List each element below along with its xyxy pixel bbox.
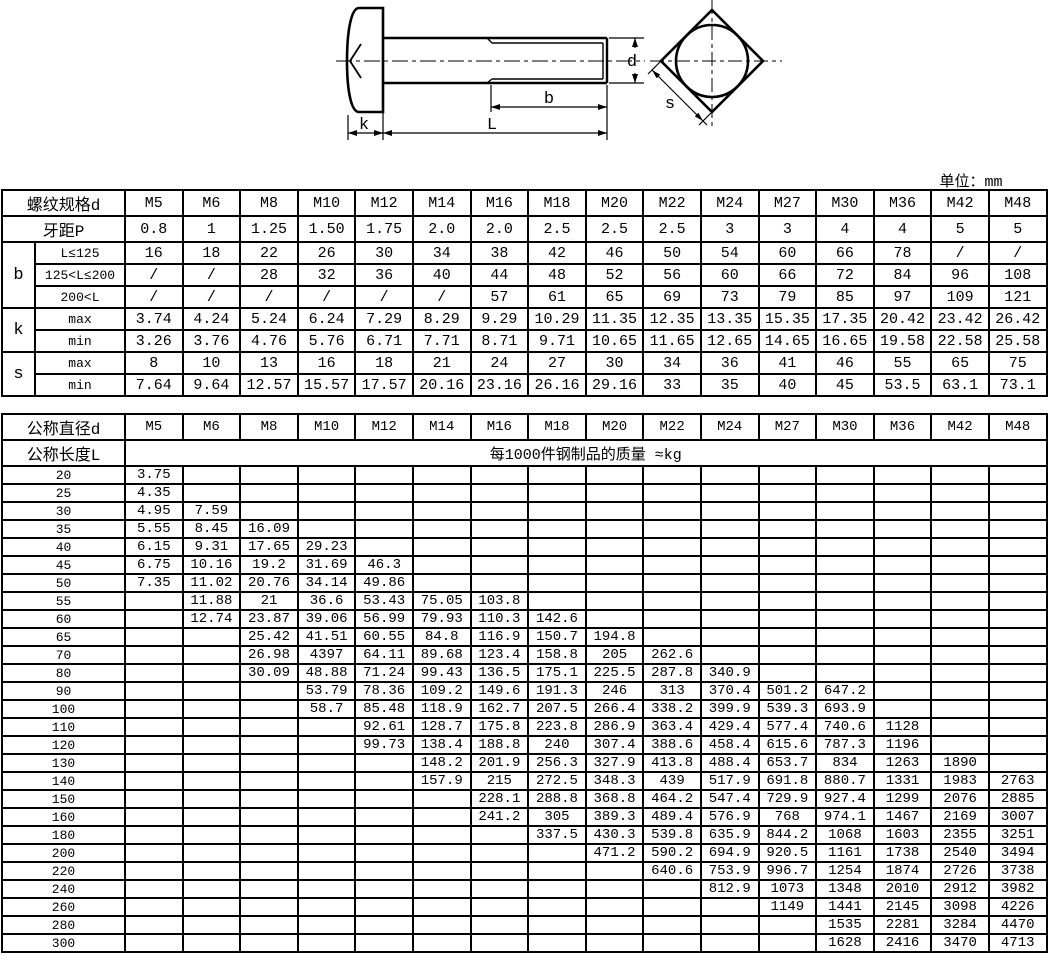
value-cell: 92.61 [355,718,413,736]
value-cell [355,520,413,538]
value-cell: 99.73 [355,736,413,754]
value-cell: 84 [874,264,932,286]
value-cell: 3.74 [125,308,183,330]
value-cell: 69 [643,286,701,308]
value-cell: 471.2 [586,844,644,862]
spec-size-header: M24 [701,190,759,216]
value-cell: 30 [586,352,644,374]
value-cell: 577.4 [759,718,817,736]
value-cell [183,916,241,934]
table-row: 240812.910731348201029123982 [2,880,1047,898]
value-cell: 3284 [931,916,989,934]
value-cell: 207.5 [528,700,586,718]
value-cell [240,808,298,826]
value-cell: 12.57 [240,374,298,396]
value-cell: 7.29 [355,308,413,330]
value-cell: 256.3 [528,754,586,772]
value-cell: 7.64 [125,374,183,396]
value-cell: 4.95 [125,502,183,520]
value-cell: 1.75 [355,216,413,242]
value-cell [701,538,759,556]
value-cell [816,574,874,592]
value-cell: 57 [471,286,529,308]
value-cell: 501.2 [759,682,817,700]
value-cell: 2416 [874,934,932,952]
value-cell: 225.5 [586,664,644,682]
value-cell [701,628,759,646]
value-cell: 927.4 [816,790,874,808]
value-cell [240,700,298,718]
dimension-b: b [491,85,607,112]
value-cell: 22.58 [931,330,989,352]
value-cell [931,700,989,718]
group-label: k [2,308,35,352]
value-cell [355,898,413,916]
mass-size-header: M14 [413,414,471,440]
length-cell: 220 [2,862,125,880]
value-cell: 3098 [931,898,989,916]
value-cell: 23.87 [240,610,298,628]
value-cell [931,502,989,520]
value-cell: 78.36 [355,682,413,700]
value-cell: 2912 [931,880,989,898]
value-cell [413,898,471,916]
value-cell: 1149 [759,898,817,916]
value-cell [643,592,701,610]
value-cell: 1441 [816,898,874,916]
value-cell [471,862,529,880]
value-cell: 1.25 [240,216,298,242]
value-cell: 84.8 [413,628,471,646]
value-cell [413,484,471,502]
value-cell [240,754,298,772]
table-row: 203.75 [2,466,1047,484]
spec-header-label: 螺纹规格d [2,190,125,216]
length-cell: 25 [2,484,125,502]
value-cell [701,898,759,916]
value-cell: 286.9 [586,718,644,736]
value-cell [701,502,759,520]
value-cell: 31.69 [298,556,356,574]
value-cell: 58.7 [298,700,356,718]
spec-table: 螺纹规格dM5M6M8M10M12M14M16M18M20M22M24M27M3… [1,189,1048,397]
value-cell [298,826,356,844]
value-cell [298,754,356,772]
value-cell: / [183,286,241,308]
value-cell [816,610,874,628]
value-cell [355,502,413,520]
value-cell: 413.8 [643,754,701,772]
value-cell: 1299 [874,790,932,808]
spec-size-header: M6 [183,190,241,216]
value-cell [989,736,1047,754]
value-cell: 3 [701,216,759,242]
value-cell: 50 [643,242,701,264]
length-cell: 70 [2,646,125,664]
value-cell: 7.71 [413,330,471,352]
value-cell [528,484,586,502]
pitch-label: 牙距P [2,216,125,242]
length-cell: 180 [2,826,125,844]
value-cell [355,484,413,502]
value-cell [413,574,471,592]
table-row: 螺纹规格dM5M6M8M10M12M14M16M18M20M22M24M27M3… [2,190,1047,216]
value-cell: 1535 [816,916,874,934]
value-cell: 996.7 [759,862,817,880]
group-label: s [2,352,35,396]
value-cell [125,592,183,610]
length-cell: 45 [2,556,125,574]
value-cell [528,592,586,610]
value-cell: 2.5 [586,216,644,242]
value-cell [816,628,874,646]
value-cell: 287.8 [643,664,701,682]
value-cell: 53.43 [355,592,413,610]
value-cell: 96 [931,264,989,286]
value-cell: 65 [586,286,644,308]
value-cell [125,772,183,790]
value-cell: 8.45 [183,520,241,538]
value-cell: 880.7 [816,772,874,790]
value-cell: 4.35 [125,484,183,502]
table-row: 125<L≤200//28323640444852566066728496108 [2,264,1047,286]
dim-label-L: L [487,116,497,135]
value-cell [528,538,586,556]
diameter-label: 公称直径d [2,414,125,440]
value-cell: 729.9 [759,790,817,808]
value-cell: 2355 [931,826,989,844]
value-cell: 974.1 [816,808,874,826]
value-cell [816,538,874,556]
length-cell: 60 [2,610,125,628]
value-cell [240,718,298,736]
value-cell [413,916,471,934]
mass-note: 每1000件钢制品的质量 ≈kg [125,440,1047,466]
value-cell: 370.4 [701,682,759,700]
spec-size-header: M20 [586,190,644,216]
value-cell: 16 [298,352,356,374]
value-cell: 215 [471,772,529,790]
value-cell: 194.8 [586,628,644,646]
length-cell: 160 [2,808,125,826]
mass-size-header: M18 [528,414,586,440]
value-cell: / [183,264,241,286]
value-cell: 693.9 [816,700,874,718]
value-cell [240,934,298,952]
value-cell [298,880,356,898]
mass-size-header: M48 [989,414,1047,440]
value-cell [183,682,241,700]
value-cell: 48 [528,264,586,286]
value-cell: 26.16 [528,374,586,396]
value-cell: 327.9 [586,754,644,772]
value-cell: / [298,286,356,308]
value-cell: 0.8 [125,216,183,242]
value-cell [355,916,413,934]
length-cell: 120 [2,736,125,754]
value-cell: 46 [586,242,644,264]
table-row: bL≤1251618222630343842465054606678// [2,242,1047,264]
value-cell: 5.76 [298,330,356,352]
value-cell: 26 [298,242,356,264]
value-cell: 41.51 [298,628,356,646]
table-row: 12099.73138.4188.8240307.4388.6458.4615.… [2,736,1047,754]
value-cell [240,736,298,754]
value-cell: 109 [931,286,989,308]
value-cell: 4.76 [240,330,298,352]
value-cell [125,718,183,736]
value-cell: 8.29 [413,308,471,330]
value-cell: 20.76 [240,574,298,592]
value-cell [125,736,183,754]
value-cell [471,484,529,502]
value-cell: 52 [586,264,644,286]
value-cell: 590.2 [643,844,701,862]
value-cell [586,520,644,538]
value-cell [701,934,759,952]
spec-size-header: M27 [759,190,817,216]
value-cell: 2.5 [528,216,586,242]
value-cell: 2.0 [413,216,471,242]
value-cell [586,898,644,916]
value-cell: 53.79 [298,682,356,700]
value-cell: 4 [816,216,874,242]
value-cell: 19.2 [240,556,298,574]
value-cell: 338.2 [643,700,701,718]
value-cell [355,790,413,808]
length-cell: 240 [2,880,125,898]
table-row: 200471.2590.2694.9920.51161173825403494 [2,844,1047,862]
value-cell: 148.2 [413,754,471,772]
value-cell [183,466,241,484]
value-cell [471,538,529,556]
value-cell: 17.65 [240,538,298,556]
value-cell [413,502,471,520]
value-cell: 121 [989,286,1047,308]
value-cell [298,772,356,790]
value-cell [643,916,701,934]
value-cell [874,610,932,628]
value-cell: 5.55 [125,520,183,538]
dim-label-k: k [359,116,369,135]
value-cell: 3.75 [125,466,183,484]
row-label: 200<L [35,286,125,308]
value-cell: 1073 [759,880,817,898]
value-cell [701,592,759,610]
value-cell [355,808,413,826]
value-cell [586,592,644,610]
value-cell [989,574,1047,592]
value-cell: 5.24 [240,308,298,330]
value-cell: 11.02 [183,574,241,592]
value-cell [989,466,1047,484]
value-cell [355,772,413,790]
value-cell: 4470 [989,916,1047,934]
value-cell: 3.26 [125,330,183,352]
spec-size-header: M10 [298,190,356,216]
row-label: 125<L≤200 [35,264,125,286]
value-cell [816,556,874,574]
value-cell: 1331 [874,772,932,790]
value-cell: 18 [183,242,241,264]
value-cell [413,880,471,898]
value-cell [298,466,356,484]
value-cell [471,934,529,952]
value-cell [471,556,529,574]
value-cell [413,862,471,880]
value-cell: 1128 [874,718,932,736]
length-cell: 300 [2,934,125,952]
value-cell [874,520,932,538]
row-label: L≤125 [35,242,125,264]
value-cell [989,592,1047,610]
value-cell [759,538,817,556]
table-row: 406.159.3117.6529.23 [2,538,1047,556]
length-cell: 260 [2,898,125,916]
length-cell: 35 [2,520,125,538]
value-cell: 635.9 [701,826,759,844]
value-cell: 25.58 [989,330,1047,352]
value-cell: 34 [643,352,701,374]
value-cell: 17.57 [355,374,413,396]
value-cell [931,682,989,700]
table-row: 3001628241634704713 [2,934,1047,952]
value-cell: 458.4 [701,736,759,754]
spec-size-header: M16 [471,190,529,216]
value-cell: 97 [874,286,932,308]
table-row: 9053.7978.36109.2149.6191.3246313370.450… [2,682,1047,700]
value-cell: 11.65 [643,330,701,352]
value-cell: 12.74 [183,610,241,628]
value-cell: 920.5 [759,844,817,862]
value-cell [759,592,817,610]
table-row: 6525.4241.5160.5584.8116.9150.7194.8 [2,628,1047,646]
value-cell [874,700,932,718]
value-cell [759,502,817,520]
value-cell [125,880,183,898]
length-cell: 280 [2,916,125,934]
value-cell: 73 [701,286,759,308]
value-cell: 41 [759,352,817,374]
mass-size-header: M6 [183,414,241,440]
value-cell: 640.6 [643,862,701,880]
length-cell: 150 [2,790,125,808]
value-cell: 3.76 [183,330,241,352]
value-cell: 768 [759,808,817,826]
value-cell [240,862,298,880]
value-cell: 28 [240,264,298,286]
value-cell [183,826,241,844]
mass-size-header: M8 [240,414,298,440]
value-cell [989,700,1047,718]
value-cell: 10 [183,352,241,374]
value-cell: 20.16 [413,374,471,396]
value-cell: 834 [816,754,874,772]
value-cell [413,790,471,808]
length-cell: 40 [2,538,125,556]
mass-table: 公称直径dM5M6M8M10M12M14M16M18M20M22M24M27M3… [1,413,1048,953]
value-cell [471,502,529,520]
value-cell [643,466,701,484]
value-cell: 1890 [931,754,989,772]
value-cell: 653.7 [759,754,817,772]
value-cell: 118.9 [413,700,471,718]
value-cell: 56 [643,264,701,286]
row-label: min [35,330,125,352]
value-cell: 539.3 [759,700,817,718]
value-cell: 1628 [816,934,874,952]
table-row: 220640.6753.9996.71254187427263738 [2,862,1047,880]
value-cell: 71.24 [355,664,413,682]
bolt-technical-drawing: d b L k s [330,0,800,150]
value-cell: 305 [528,808,586,826]
length-cell: 90 [2,682,125,700]
value-cell [528,466,586,484]
value-cell [183,862,241,880]
value-cell [471,898,529,916]
value-cell: 128.7 [413,718,471,736]
table-row: smax8101316182124273034364146556575 [2,352,1047,374]
row-label: min [35,374,125,396]
value-cell: 175.8 [471,718,529,736]
value-cell: 1161 [816,844,874,862]
value-cell [701,916,759,934]
value-cell: 149.6 [471,682,529,700]
value-cell: 9.29 [471,308,529,330]
value-cell: 79 [759,286,817,308]
value-cell: 45 [816,374,874,396]
value-cell [471,466,529,484]
mass-size-header: M10 [298,414,356,440]
value-cell [874,664,932,682]
value-cell [183,790,241,808]
value-cell: 18 [355,352,413,374]
mass-size-header: M24 [701,414,759,440]
value-cell: 73.1 [989,374,1047,396]
value-cell: 2.0 [471,216,529,242]
value-cell [874,466,932,484]
spec-size-header: M48 [989,190,1047,216]
value-cell [701,466,759,484]
mass-size-header: M16 [471,414,529,440]
table-row: 130148.2201.9256.3327.9413.8488.4653.783… [2,754,1047,772]
value-cell: 15.35 [759,308,817,330]
value-cell [701,646,759,664]
value-cell: 4713 [989,934,1047,952]
value-cell: 539.8 [643,826,701,844]
value-cell: 368.8 [586,790,644,808]
value-cell: 4.24 [183,308,241,330]
value-cell [701,484,759,502]
table-row: 26011491441214530984226 [2,898,1047,916]
value-cell [586,466,644,484]
value-cell [125,700,183,718]
value-cell: 36 [355,264,413,286]
value-cell: 110.3 [471,610,529,628]
value-cell [989,538,1047,556]
value-cell [125,790,183,808]
length-cell: 50 [2,574,125,592]
value-cell [183,646,241,664]
value-cell [240,682,298,700]
value-cell [759,574,817,592]
value-cell: 429.4 [701,718,759,736]
value-cell [701,574,759,592]
value-cell [874,592,932,610]
row-label: max [35,308,125,330]
value-cell: 2540 [931,844,989,862]
value-cell: 1068 [816,826,874,844]
